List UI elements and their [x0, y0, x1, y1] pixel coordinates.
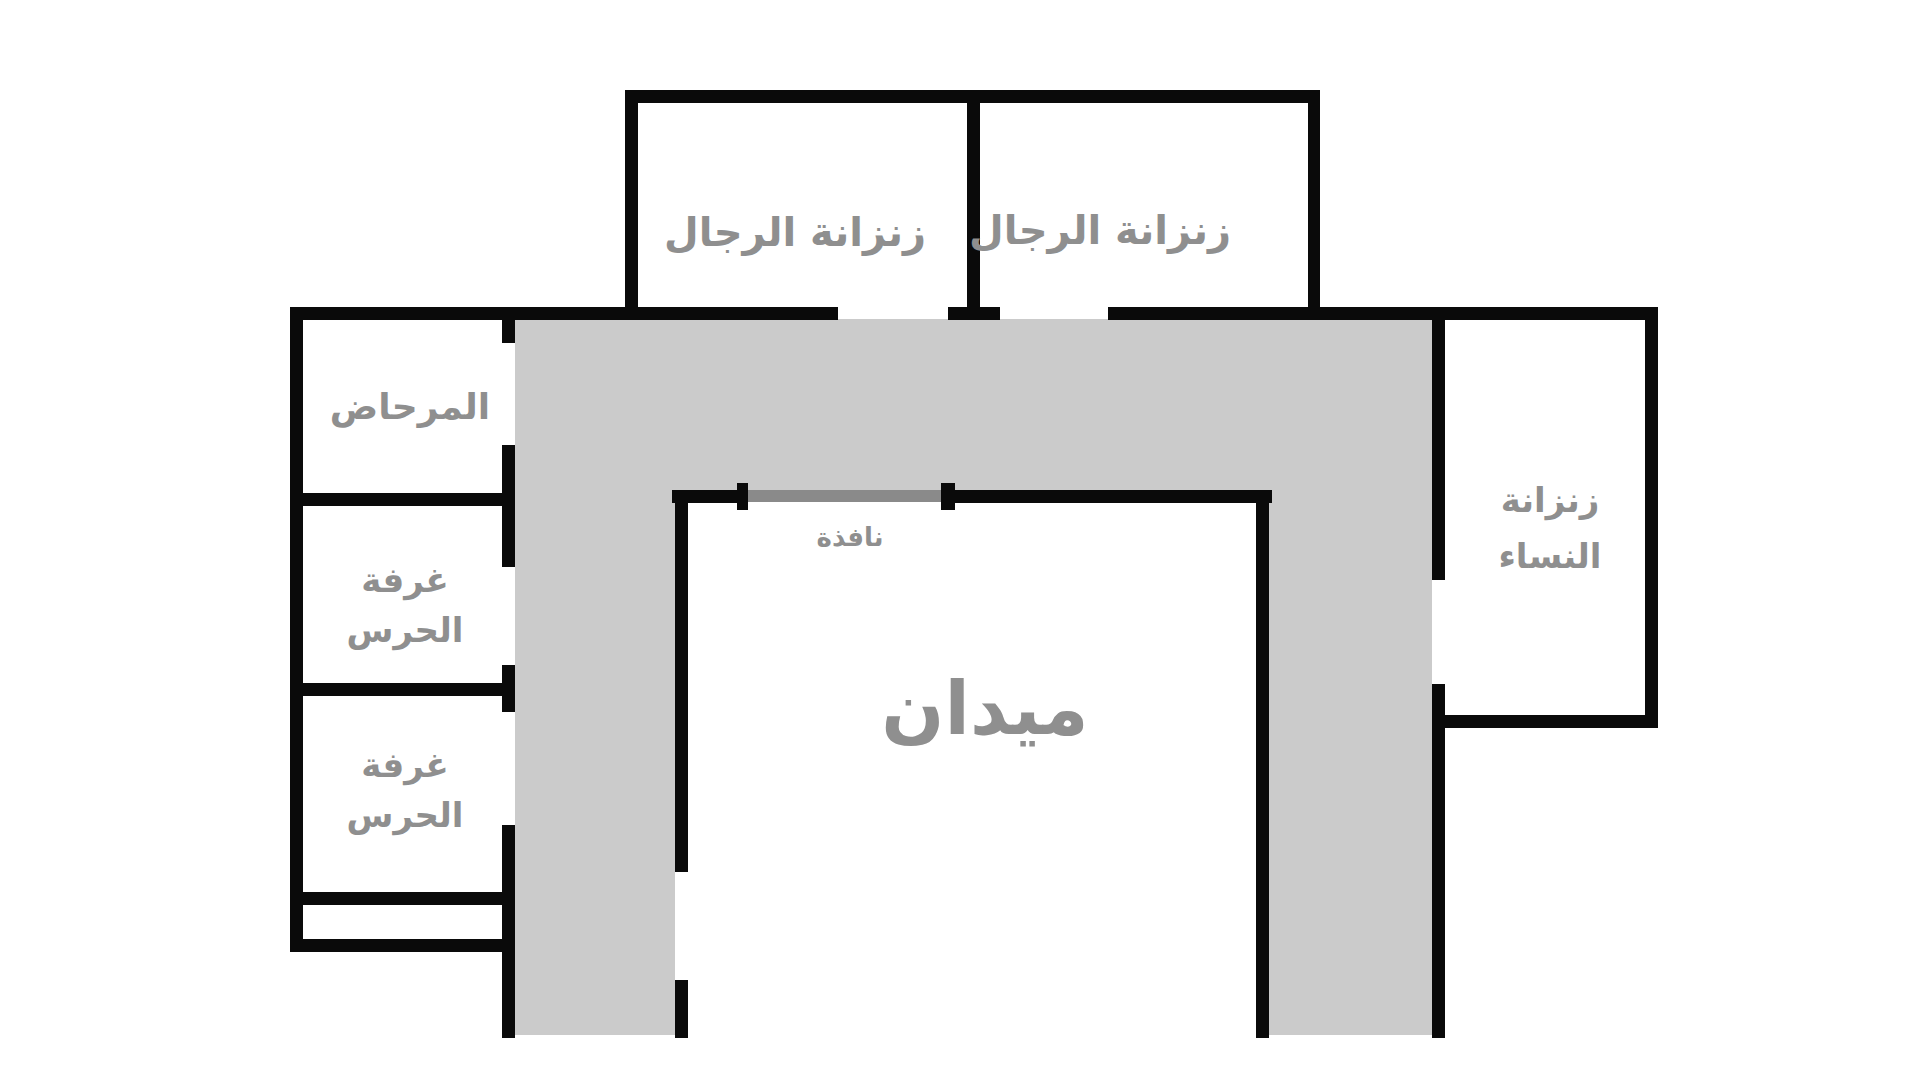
courtyard-text: ميدان	[881, 665, 1088, 751]
corridor-top-band	[515, 319, 1432, 490]
wall-mens-cells-right	[1308, 90, 1320, 320]
room-label-guard-room-2: غرفة الحرس	[347, 740, 464, 840]
window-jamb-right	[941, 483, 955, 510]
room-label-womens-cell: زنزانة النساء	[1498, 472, 1601, 584]
womens-cell-line1: زنزانة	[1498, 472, 1601, 528]
mens-cell-left-text: زنزانة الرجال	[664, 209, 926, 255]
window-bar	[748, 490, 941, 502]
room-label-mens-cell-right: زنزانة الرجال	[969, 206, 1231, 254]
wall-guard2-bottom	[290, 892, 515, 905]
wall-womens-bottom	[1432, 715, 1658, 728]
guard-room-2-line1: غرفة	[347, 740, 464, 790]
corridor-left-band	[515, 490, 675, 1035]
floor-plan: زنزانة الرجال زنزانة الرجال المرحاض غرفة…	[0, 0, 1920, 1080]
window-jamb-left	[737, 483, 748, 510]
wall-mens-cells-left	[625, 90, 638, 320]
toilet-text: المرحاض	[330, 386, 490, 427]
wall-courtyard-top-right	[955, 490, 1272, 503]
guard-room-1-line1: غرفة	[347, 555, 464, 605]
womens-cell-line2: النساء	[1498, 528, 1601, 584]
wall-courtyard-right	[1256, 490, 1269, 1038]
wall-left-rooms-right-seg3	[502, 665, 515, 712]
room-label-mens-cell-left: زنزانة الرجال	[664, 208, 926, 256]
wall-left-rooms-right-seg1	[502, 319, 515, 343]
wall-courtyard-left-lower	[675, 980, 688, 1038]
wall-womens-left-lower	[1432, 684, 1445, 1038]
wall-left-outer-bottom	[290, 939, 515, 952]
guard-room-1-line2: الحرس	[347, 605, 464, 655]
wall-left-rooms-right-seg4	[502, 825, 515, 1038]
wall-main-horizontal-right	[1108, 307, 1658, 320]
wall-toilet-guard1-divider	[290, 493, 515, 506]
wall-left-outer	[290, 307, 303, 952]
wall-mens-cells-divider	[967, 90, 980, 307]
wall-main-horizontal-left	[290, 307, 838, 320]
wall-divider-stub	[948, 307, 1000, 320]
guard-room-2-line2: الحرس	[347, 790, 464, 840]
corridor-right-band	[1269, 490, 1432, 1035]
room-label-toilet: المرحاض	[330, 385, 490, 428]
room-label-guard-room-1: غرفة الحرس	[347, 555, 464, 655]
mens-cell-right-text: زنزانة الرجال	[969, 207, 1231, 253]
wall-womens-left-upper	[1432, 320, 1445, 580]
wall-left-rooms-right-seg2	[502, 445, 515, 567]
wall-courtyard-left-upper	[675, 490, 688, 872]
window-label: نافذة	[817, 522, 884, 553]
courtyard-label: ميدان	[881, 664, 1088, 753]
wall-guard1-guard2-divider	[290, 683, 515, 696]
window-text: نافذة	[817, 522, 884, 552]
wall-womens-right	[1645, 307, 1658, 728]
